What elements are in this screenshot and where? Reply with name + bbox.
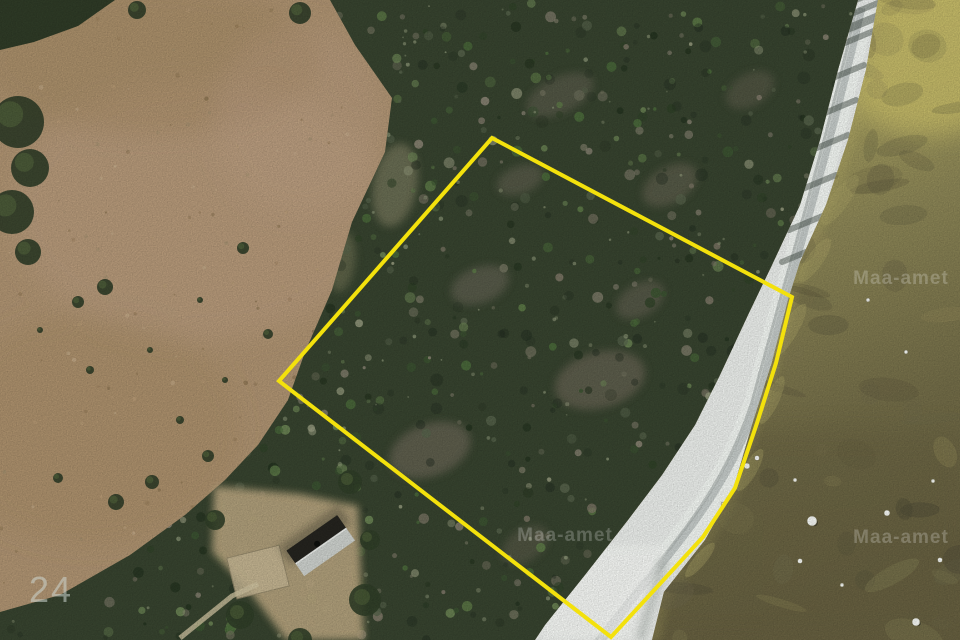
watermark-brand: Maa-amet: [853, 268, 949, 289]
sheet-number-watermark: 24: [29, 569, 73, 610]
watermark-brand: Maa-amet: [853, 527, 949, 548]
photo-grain: [0, 0, 960, 640]
watermark-brand: Maa-amet: [517, 525, 613, 546]
aerial-map[interactable]: Maa-amet Maa-amet Maa-amet 24: [0, 0, 960, 640]
